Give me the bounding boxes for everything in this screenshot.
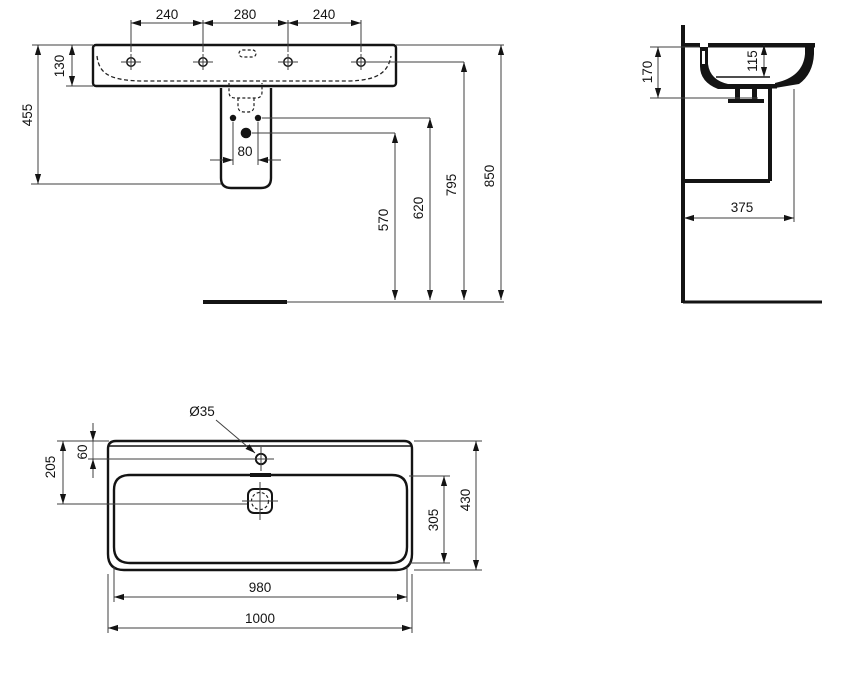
- dim-label-240-left: 240: [156, 7, 179, 22]
- dim-label-980: 980: [249, 580, 272, 595]
- dim-label-305: 305: [426, 509, 441, 532]
- supply-point-right: [255, 115, 261, 121]
- plan-bottom-dimensions: 980 1000: [108, 567, 412, 633]
- dim-label-570: 570: [376, 209, 391, 232]
- front-view: 240 280 240 130 455 80: [20, 7, 504, 302]
- tap-hole-2: [193, 54, 213, 70]
- dim-label-375: 375: [731, 200, 754, 215]
- dim-label-620: 620: [411, 197, 426, 220]
- bowl-depth-dimension: 115: [745, 45, 764, 77]
- overflow-slot-front: [239, 50, 256, 57]
- dim-label-170: 170: [640, 61, 655, 84]
- dim-label-795: 795: [444, 174, 459, 197]
- technical-drawing-page: 240 280 240 130 455 80: [0, 0, 849, 673]
- dim-label-430: 430: [458, 489, 473, 512]
- tap-hole-3: [278, 54, 298, 70]
- front-height-dimensions: 570 620 795 850: [252, 45, 504, 300]
- dim-label-80: 80: [237, 144, 252, 159]
- side-view: 170 115 375: [640, 25, 822, 303]
- dim-label-240-right: 240: [313, 7, 336, 22]
- dim-label-1000: 1000: [245, 611, 275, 626]
- drain-boss-flange: [728, 99, 764, 103]
- dim-label-115: 115: [745, 50, 760, 72]
- side-height-dimension: 170: [640, 47, 758, 98]
- drain-outlet-point: [241, 128, 252, 139]
- dim-label-280: 280: [234, 7, 257, 22]
- supply-point-left: [230, 115, 236, 121]
- dim-label-205: 205: [43, 456, 58, 479]
- washbasin-technical-drawing: 240 280 240 130 455 80: [0, 0, 849, 673]
- drain-boss-left: [735, 86, 740, 99]
- basin-front-outline: [93, 45, 396, 86]
- dim-label-850: 850: [482, 165, 497, 188]
- drain-connector-dashed-inner: [238, 98, 254, 112]
- dim-label-130: 130: [52, 55, 67, 78]
- plan-left-dimensions: 60 205: [43, 423, 248, 504]
- dim-label-d35: Ø35: [189, 404, 215, 419]
- wall-line: [681, 25, 685, 303]
- dim-label-60: 60: [75, 444, 90, 459]
- depth-dimension: 375: [684, 89, 794, 222]
- dim-label-455: 455: [20, 104, 35, 127]
- plan-view: Ø35 60 205 305: [43, 404, 482, 633]
- basin-inner-dashed-contour: [97, 56, 391, 81]
- front-left-dimensions: 130 455: [20, 45, 221, 184]
- basin-underside-edge: [757, 84, 777, 89]
- basin-front-wall-section: [775, 43, 814, 88]
- drain-boss-right: [752, 86, 757, 99]
- drain-plan: [242, 482, 278, 520]
- tap-hole-1: [121, 54, 141, 70]
- plan-right-dimensions: 305 430: [409, 441, 482, 570]
